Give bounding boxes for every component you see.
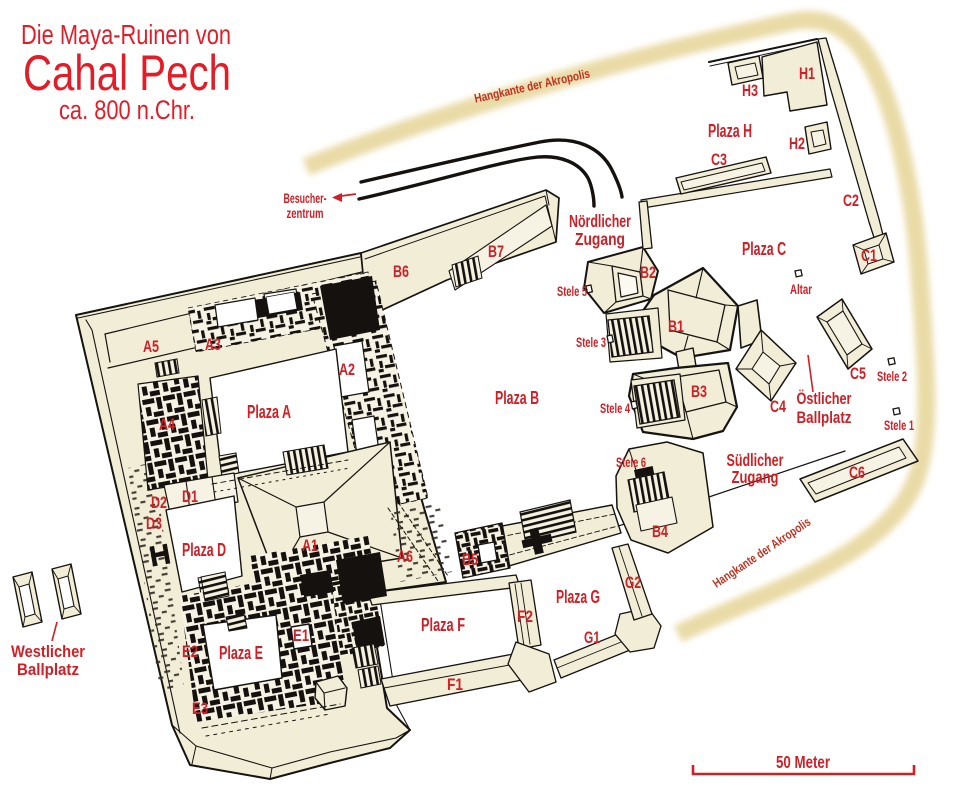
svg-text:C4: C4: [770, 397, 786, 416]
svg-text:B7: B7: [488, 242, 504, 261]
svg-text:A2: A2: [339, 360, 355, 379]
svg-text:B5: B5: [462, 550, 478, 569]
svg-text:B6: B6: [393, 262, 409, 281]
svg-text:Ballplatz: Ballplatz: [17, 661, 79, 679]
svg-text:F1: F1: [447, 675, 463, 694]
svg-text:A5: A5: [143, 337, 159, 356]
svg-text:F2: F2: [517, 607, 533, 626]
svg-text:B2: B2: [640, 263, 656, 282]
svg-text:C1: C1: [861, 246, 877, 265]
svg-text:D3: D3: [146, 514, 162, 533]
svg-text:Ballplatz: Ballplatz: [797, 408, 852, 427]
svg-text:A1: A1: [302, 536, 318, 555]
svg-text:Plaza G: Plaza G: [556, 587, 600, 607]
svg-text:A4: A4: [159, 415, 175, 434]
svg-text:Plaza D: Plaza D: [182, 540, 226, 560]
svg-text:zentrum: zentrum: [287, 206, 324, 221]
svg-text:Stele 3: Stele 3: [576, 334, 606, 350]
svg-text:B3: B3: [691, 382, 707, 401]
svg-text:Stele 2: Stele 2: [877, 368, 907, 384]
svg-text:B4: B4: [652, 522, 668, 541]
svg-text:Zugang: Zugang: [575, 229, 625, 249]
svg-text:Plaza F: Plaza F: [421, 615, 465, 635]
svg-text:C6: C6: [849, 463, 865, 482]
svg-text:H3: H3: [742, 81, 758, 100]
svg-text:G2: G2: [625, 573, 641, 592]
svg-text:Plaza A: Plaza A: [247, 402, 291, 422]
svg-text:Nördlicher: Nördlicher: [569, 211, 631, 231]
svg-text:D2: D2: [151, 493, 167, 512]
svg-text:Stele 1: Stele 1: [884, 417, 914, 433]
svg-text:Stele 6: Stele 6: [616, 454, 646, 470]
svg-text:50 Meter: 50 Meter: [776, 752, 830, 772]
svg-text:A6: A6: [397, 547, 413, 566]
svg-text:G1: G1: [584, 628, 600, 647]
svg-text:C2: C2: [843, 191, 859, 210]
svg-text:Cahal Pech: Cahal Pech: [23, 45, 231, 101]
svg-text:Plaza H: Plaza H: [708, 121, 752, 141]
svg-text:Stele 4: Stele 4: [600, 400, 630, 416]
svg-text:Plaza C: Plaza C: [742, 239, 786, 259]
svg-text:Altar: Altar: [790, 281, 812, 297]
svg-text:E3: E3: [192, 699, 208, 718]
svg-text:H2: H2: [789, 134, 805, 153]
svg-text:Östlicher: Östlicher: [797, 389, 852, 408]
svg-text:Plaza B: Plaza B: [495, 388, 539, 408]
svg-text:A3: A3: [205, 335, 221, 354]
svg-text:ca. 800 n.Chr.: ca. 800 n.Chr.: [59, 95, 195, 125]
svg-text:D1: D1: [182, 487, 198, 506]
svg-text:B1: B1: [668, 317, 684, 336]
svg-text:C3: C3: [711, 150, 727, 169]
svg-text:Plaza E: Plaza E: [219, 643, 263, 663]
svg-text:Zugang: Zugang: [732, 467, 779, 487]
svg-text:Westlicher: Westlicher: [11, 643, 86, 661]
svg-text:E2: E2: [182, 642, 198, 661]
svg-text:E1: E1: [293, 626, 309, 645]
svg-text:Stele 5: Stele 5: [557, 283, 587, 299]
svg-text:H1: H1: [799, 64, 815, 83]
svg-text:C5: C5: [850, 364, 866, 383]
svg-text:Besucher-: Besucher-: [284, 191, 327, 206]
